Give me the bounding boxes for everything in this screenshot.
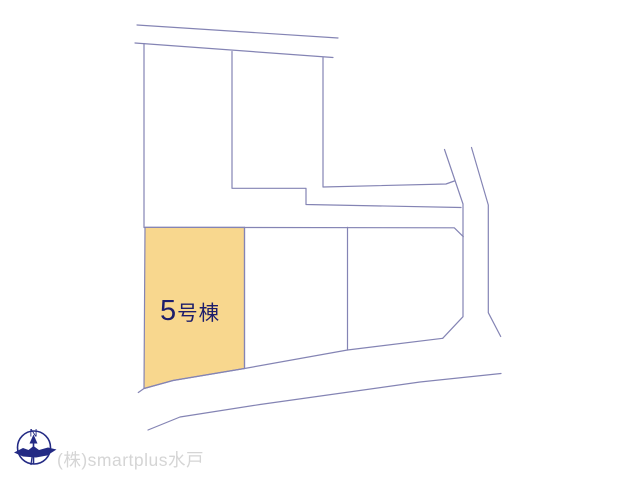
right-road-right-edge xyxy=(472,148,501,337)
upper-parcel-right-boundary xyxy=(323,58,454,188)
company-watermark: (株)smartplus水戸 xyxy=(57,447,204,472)
parcel-5-label: 5 号棟 xyxy=(160,295,220,328)
plot-map-page: N 5 号棟 (株)smartplus水戸 xyxy=(0,0,640,480)
parcel-line-group xyxy=(135,25,501,430)
parcel-5-label-suffix: 号棟 xyxy=(177,296,220,326)
right-road-left-edge xyxy=(443,150,463,339)
bottom-road-lower-edge xyxy=(148,374,501,431)
top-road-inner-edge xyxy=(135,43,333,58)
site-plan-drawing: N xyxy=(0,0,640,480)
parcel-5-label-number: 5 xyxy=(160,295,177,328)
compass-rose: N xyxy=(14,428,57,465)
top-road-outer-edge xyxy=(137,25,338,38)
